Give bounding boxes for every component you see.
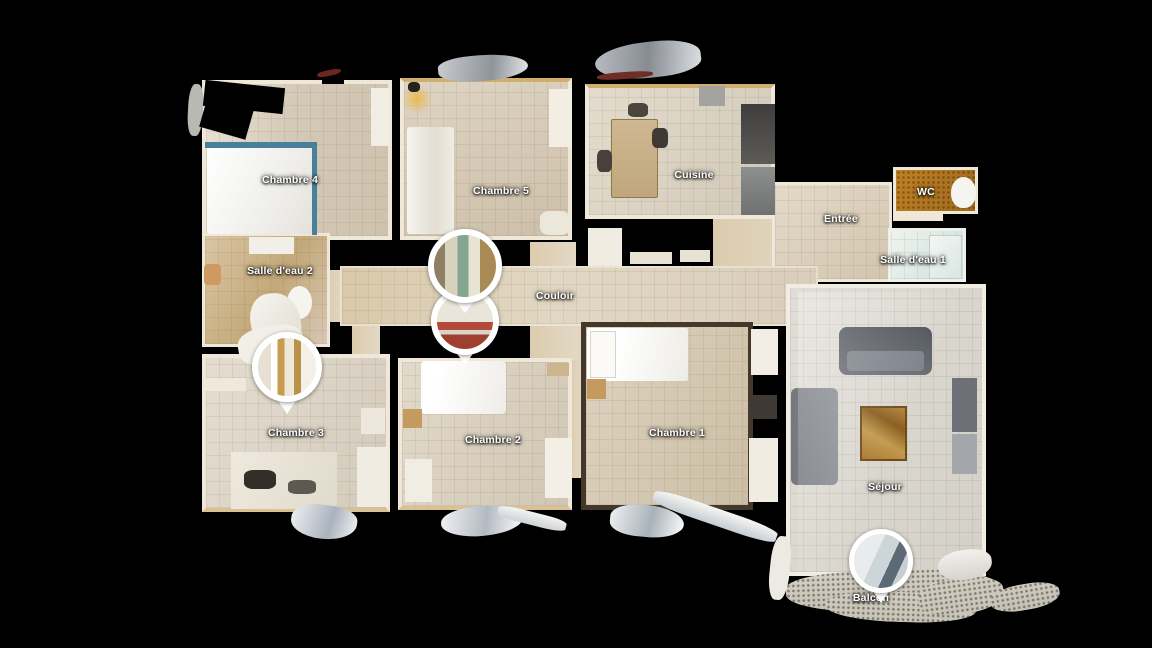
- room-label-cuisine: Cuisine: [674, 169, 713, 181]
- room-label-entree: Entrée: [824, 213, 858, 225]
- pillow-chambre-1: [590, 331, 616, 378]
- lamp-chambre-5: [408, 82, 420, 92]
- wall-fragment-wc: [893, 212, 943, 221]
- cabinet-dark-chambre-1: [749, 395, 777, 419]
- shelf-chambre-4: [371, 88, 390, 146]
- pano-marker-balcon[interactable]: [849, 529, 913, 593]
- wardrobe-right-chambre-3: [357, 447, 388, 507]
- floorplan-stage[interactable]: Chambre 4Chambre 5CuisineWCEntréeSalle d…: [0, 0, 1152, 648]
- kitchen-table: [611, 119, 658, 198]
- pano-marker-chambre-3[interactable]: [252, 332, 322, 402]
- sink-salle-eau-2: [249, 237, 294, 254]
- kitchen-counter-upper: [741, 104, 775, 164]
- wall-fragment-cuisine-a: [588, 228, 622, 266]
- kitchen-chair-b: [652, 128, 668, 148]
- wardrobe-chambre-5: [407, 127, 454, 234]
- room-label-salle-eau-2: Salle d'eau 2: [247, 265, 313, 277]
- cabinet-chambre-5: [540, 211, 570, 235]
- kitchen-chair-a: [597, 150, 612, 172]
- room-label-chambre-4: Chambre 4: [262, 174, 318, 186]
- room-label-wc: WC: [917, 186, 935, 198]
- pano-marker-couloir-upper[interactable]: [428, 229, 502, 303]
- room-label-chambre-3: Chambre 3: [268, 427, 324, 439]
- room-label-chambre-5: Chambre 5: [473, 185, 529, 197]
- wall-fragment-cuisine-c: [680, 250, 710, 262]
- marker-photo-couloir-upper: [428, 229, 502, 303]
- room-label-sejour: Séjour: [868, 481, 902, 493]
- kitchen-appliance: [699, 86, 725, 106]
- nightstand-chambre-1: [587, 379, 606, 399]
- room-label-couloir: Couloir: [536, 290, 574, 302]
- wall-fragment-cuisine-b: [630, 252, 672, 264]
- wardrobe-a-chambre-1: [751, 329, 778, 375]
- nightstand-chambre-2: [403, 409, 422, 428]
- desk-chair-chambre-3: [244, 470, 276, 489]
- bed-frame-top-chambre-4: [205, 142, 317, 148]
- room-label-chambre-2: Chambre 2: [465, 434, 521, 446]
- room-label-chambre-1: Chambre 1: [649, 427, 705, 439]
- marker-photo-chambre-3: [252, 332, 322, 402]
- toilet-wc: [951, 177, 976, 208]
- marker-photo-balcon: [849, 529, 913, 593]
- bed-frame-right-chambre-4: [312, 142, 317, 235]
- shelf-chambre-2: [547, 363, 569, 376]
- cabinet-right-chambre-3: [361, 408, 385, 434]
- bed-chambre-2: [421, 361, 506, 414]
- kitchen-counter-lower: [741, 167, 775, 215]
- shelf-left-chambre-3: [204, 378, 246, 391]
- room-label-salle-eau-1: Salle d'eau 1: [880, 254, 946, 266]
- shelf-chambre-5: [549, 89, 572, 147]
- bed-chambre-4: [207, 146, 314, 234]
- room-couloir: [340, 266, 818, 326]
- desk-item-chambre-3: [288, 480, 316, 494]
- wardrobe-b-chambre-1: [749, 438, 778, 502]
- wardrobe-chambre-2: [545, 438, 572, 498]
- kitchen-chair-c: [628, 103, 648, 117]
- stool-salle-eau-2: [204, 264, 221, 285]
- cabinet-chambre-2: [405, 459, 432, 502]
